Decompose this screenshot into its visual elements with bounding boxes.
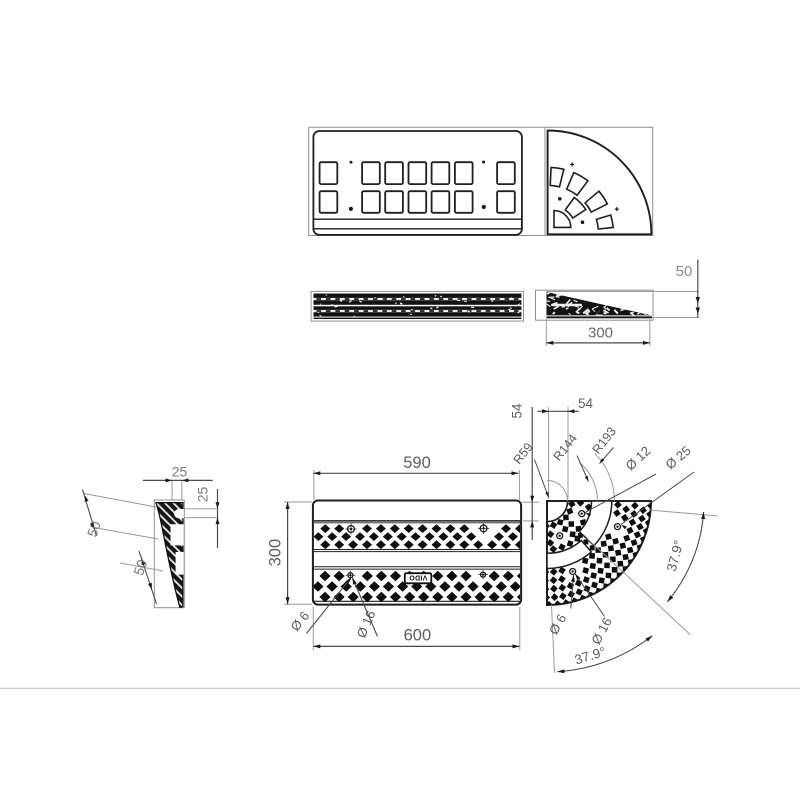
svg-text:50: 50 <box>84 519 104 539</box>
svg-text:37.9°: 37.9° <box>573 644 608 668</box>
svg-text:37.9°: 37.9° <box>664 539 687 573</box>
svg-text:25: 25 <box>172 464 188 480</box>
svg-text:Ø 25: Ø 25 <box>662 443 693 473</box>
svg-text:R144: R144 <box>551 431 580 463</box>
svg-text:Ø 16: Ø 16 <box>588 615 614 647</box>
svg-text:Ø 6: Ø 6 <box>546 611 569 637</box>
svg-text:25: 25 <box>195 487 211 503</box>
svg-text:VIDO: VIDO <box>409 574 428 581</box>
svg-text:50: 50 <box>676 263 693 280</box>
svg-text:Ø 12: Ø 12 <box>623 443 654 473</box>
svg-text:300: 300 <box>267 539 285 567</box>
svg-text:590: 590 <box>403 454 431 472</box>
svg-text:54: 54 <box>510 403 525 419</box>
svg-text:54: 54 <box>578 396 594 411</box>
svg-text:600: 600 <box>404 627 432 645</box>
svg-text:R193: R193 <box>590 424 619 456</box>
svg-text:Ø 16: Ø 16 <box>354 608 379 640</box>
svg-text:50: 50 <box>130 557 150 577</box>
svg-text:300: 300 <box>588 325 613 342</box>
